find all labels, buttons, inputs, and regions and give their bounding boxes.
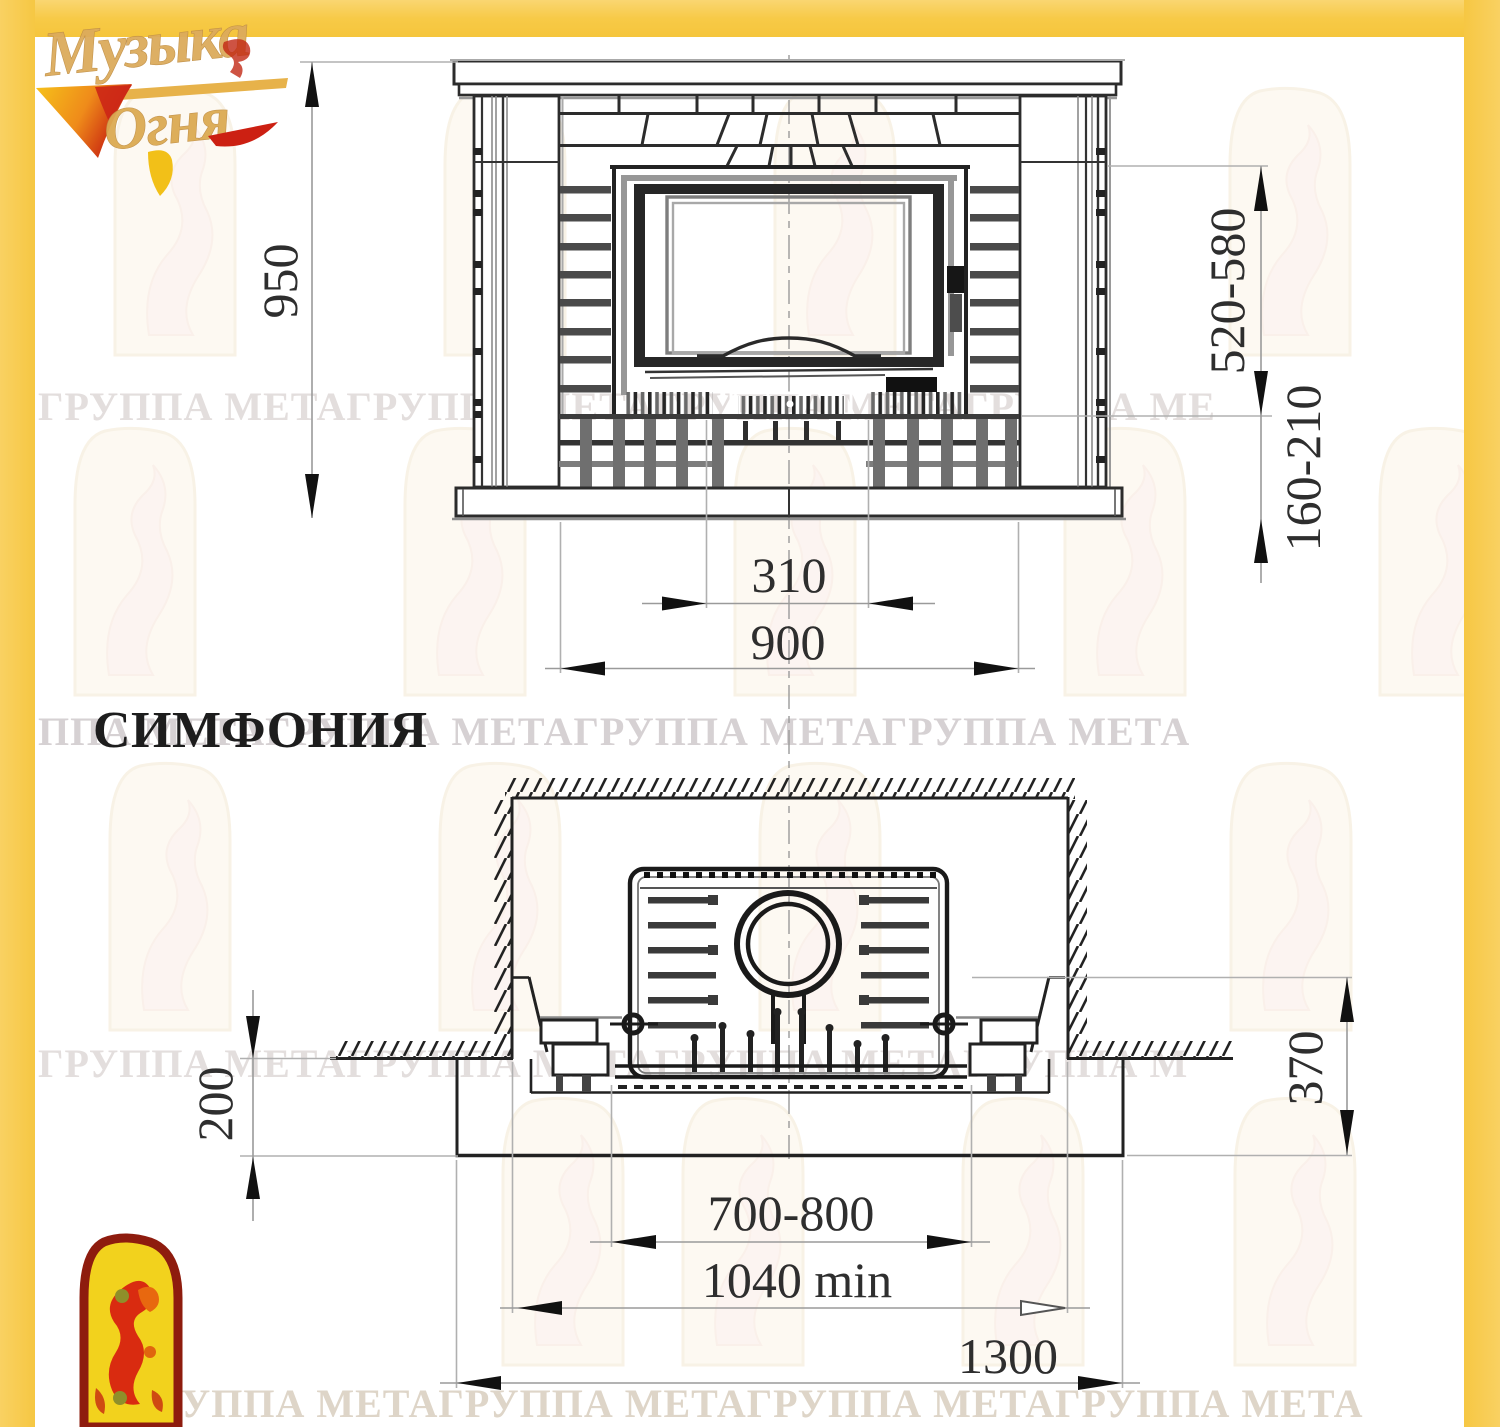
svg-text:СИМФОНИЯ: СИМФОНИЯ (93, 702, 428, 759)
svg-text:160-210: 160-210 (1275, 385, 1331, 552)
svg-text:1300: 1300 (958, 1328, 1058, 1384)
svg-text:1040 min: 1040 min (702, 1252, 892, 1308)
svg-text:310: 310 (752, 547, 827, 603)
svg-text:700-800: 700-800 (708, 1185, 875, 1241)
svg-text:950: 950 (252, 244, 308, 319)
svg-text:ГРУППА МЕТАГРУППА МЕТАГРУППА М: ГРУППА МЕТАГРУППА МЕТАГРУППА МЕТАГРУППА … (130, 1381, 1363, 1426)
svg-text:Огня: Огня (100, 84, 232, 163)
svg-text:200: 200 (187, 1067, 243, 1142)
svg-text:370: 370 (1277, 1031, 1333, 1106)
svg-text:520-580: 520-580 (1199, 208, 1255, 375)
svg-text:900: 900 (751, 614, 826, 670)
